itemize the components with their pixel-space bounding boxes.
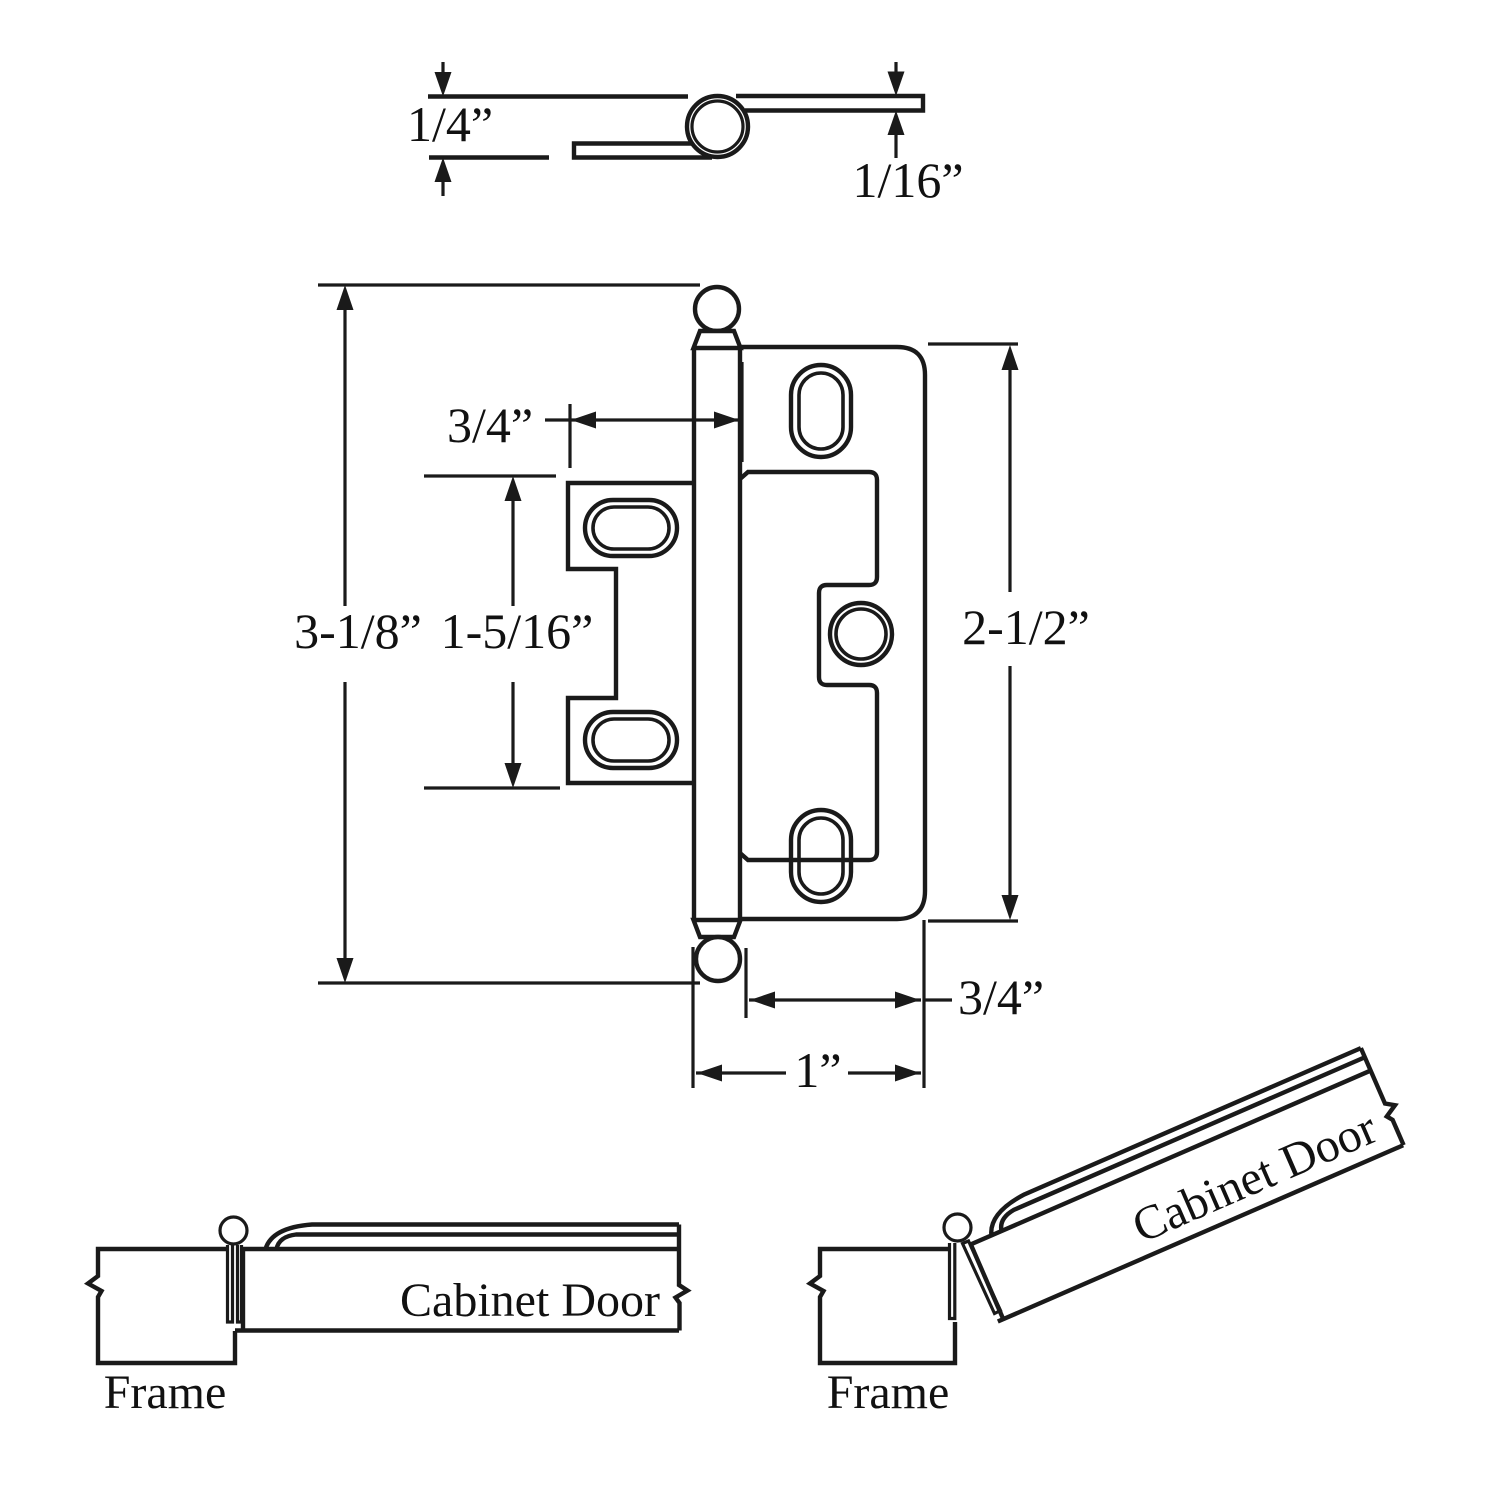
arrowhead-left <box>571 412 596 429</box>
hinge-barrel-left-wall <box>228 1245 233 1322</box>
hinge-frame-leaf <box>950 1243 955 1319</box>
bottom-ball-finial <box>696 937 740 981</box>
hinge-ball <box>220 1217 247 1244</box>
dim-label-overall-height: 3-1/8” <box>294 603 422 659</box>
side-profile-view: 1/4” 1/16” <box>407 62 964 208</box>
open-door-rotated-group: Cabinet Door <box>956 1045 1411 1322</box>
dim-label-framewing-width: 1” <box>794 1042 841 1098</box>
arrowhead-down <box>505 763 522 788</box>
door-moulding-line-outer <box>266 1225 680 1250</box>
arrowhead-up <box>1002 345 1019 370</box>
upper-leaf-profile <box>736 96 923 111</box>
hinge-barrel-right-wall <box>238 1245 242 1322</box>
arrowhead-down <box>435 72 452 97</box>
arrowhead-left <box>697 1065 722 1082</box>
closed-door-label: Cabinet Door <box>400 1274 660 1327</box>
arrowhead-left <box>750 992 775 1009</box>
arrowhead-up <box>888 111 905 136</box>
arrowhead-down <box>1002 895 1019 920</box>
arrowhead-up <box>505 476 522 501</box>
bottom-finial-base <box>694 920 741 937</box>
open-door-illustration: Cabinet Door Frame <box>810 1045 1411 1419</box>
front-view: 3-1/8” 1-5/16” 3/4” 2-1/2” 3/4” <box>294 285 1090 1098</box>
center-screw-hole-outer <box>830 603 892 665</box>
top-finial-base <box>694 331 741 348</box>
arrowhead-up <box>435 158 452 183</box>
barrel-outer-circle <box>687 96 748 157</box>
closed-door-illustration: Cabinet Door Frame <box>88 1217 688 1419</box>
top-ball-finial <box>695 287 739 331</box>
arrowhead-down <box>337 958 354 983</box>
arrowhead-right <box>714 412 739 429</box>
arrowhead-down <box>888 72 905 97</box>
door-left-edge <box>971 1244 1003 1318</box>
dim-label-screw-offset: 3/4” <box>958 969 1044 1025</box>
dim-label-doorwing-width: 3/4” <box>447 397 533 453</box>
dim-label-doorwing-height: 1-5/16” <box>441 603 594 659</box>
arrowhead-right <box>895 992 920 1009</box>
closed-frame-label: Frame <box>104 1366 227 1419</box>
arrowhead-right <box>895 1065 920 1082</box>
open-door-label: Cabinet Door <box>1125 1101 1385 1253</box>
hinge-dimension-diagram: 1/4” 1/16” <box>0 0 1500 1500</box>
dim-label-leaf-offset: 1/4” <box>407 96 493 152</box>
frame-section <box>810 1249 955 1363</box>
door-right-edge-break <box>676 1225 688 1331</box>
hinge-ball <box>944 1214 971 1241</box>
diagram-canvas: 1/4” 1/16” <box>0 0 1500 1500</box>
frame-section <box>88 1249 235 1363</box>
dim-label-framewing-height: 2-1/2” <box>962 599 1090 655</box>
open-frame-label: Frame <box>827 1366 950 1419</box>
dim-label-leaf-thickness: 1/16” <box>852 152 963 208</box>
arrowhead-up <box>337 285 354 310</box>
